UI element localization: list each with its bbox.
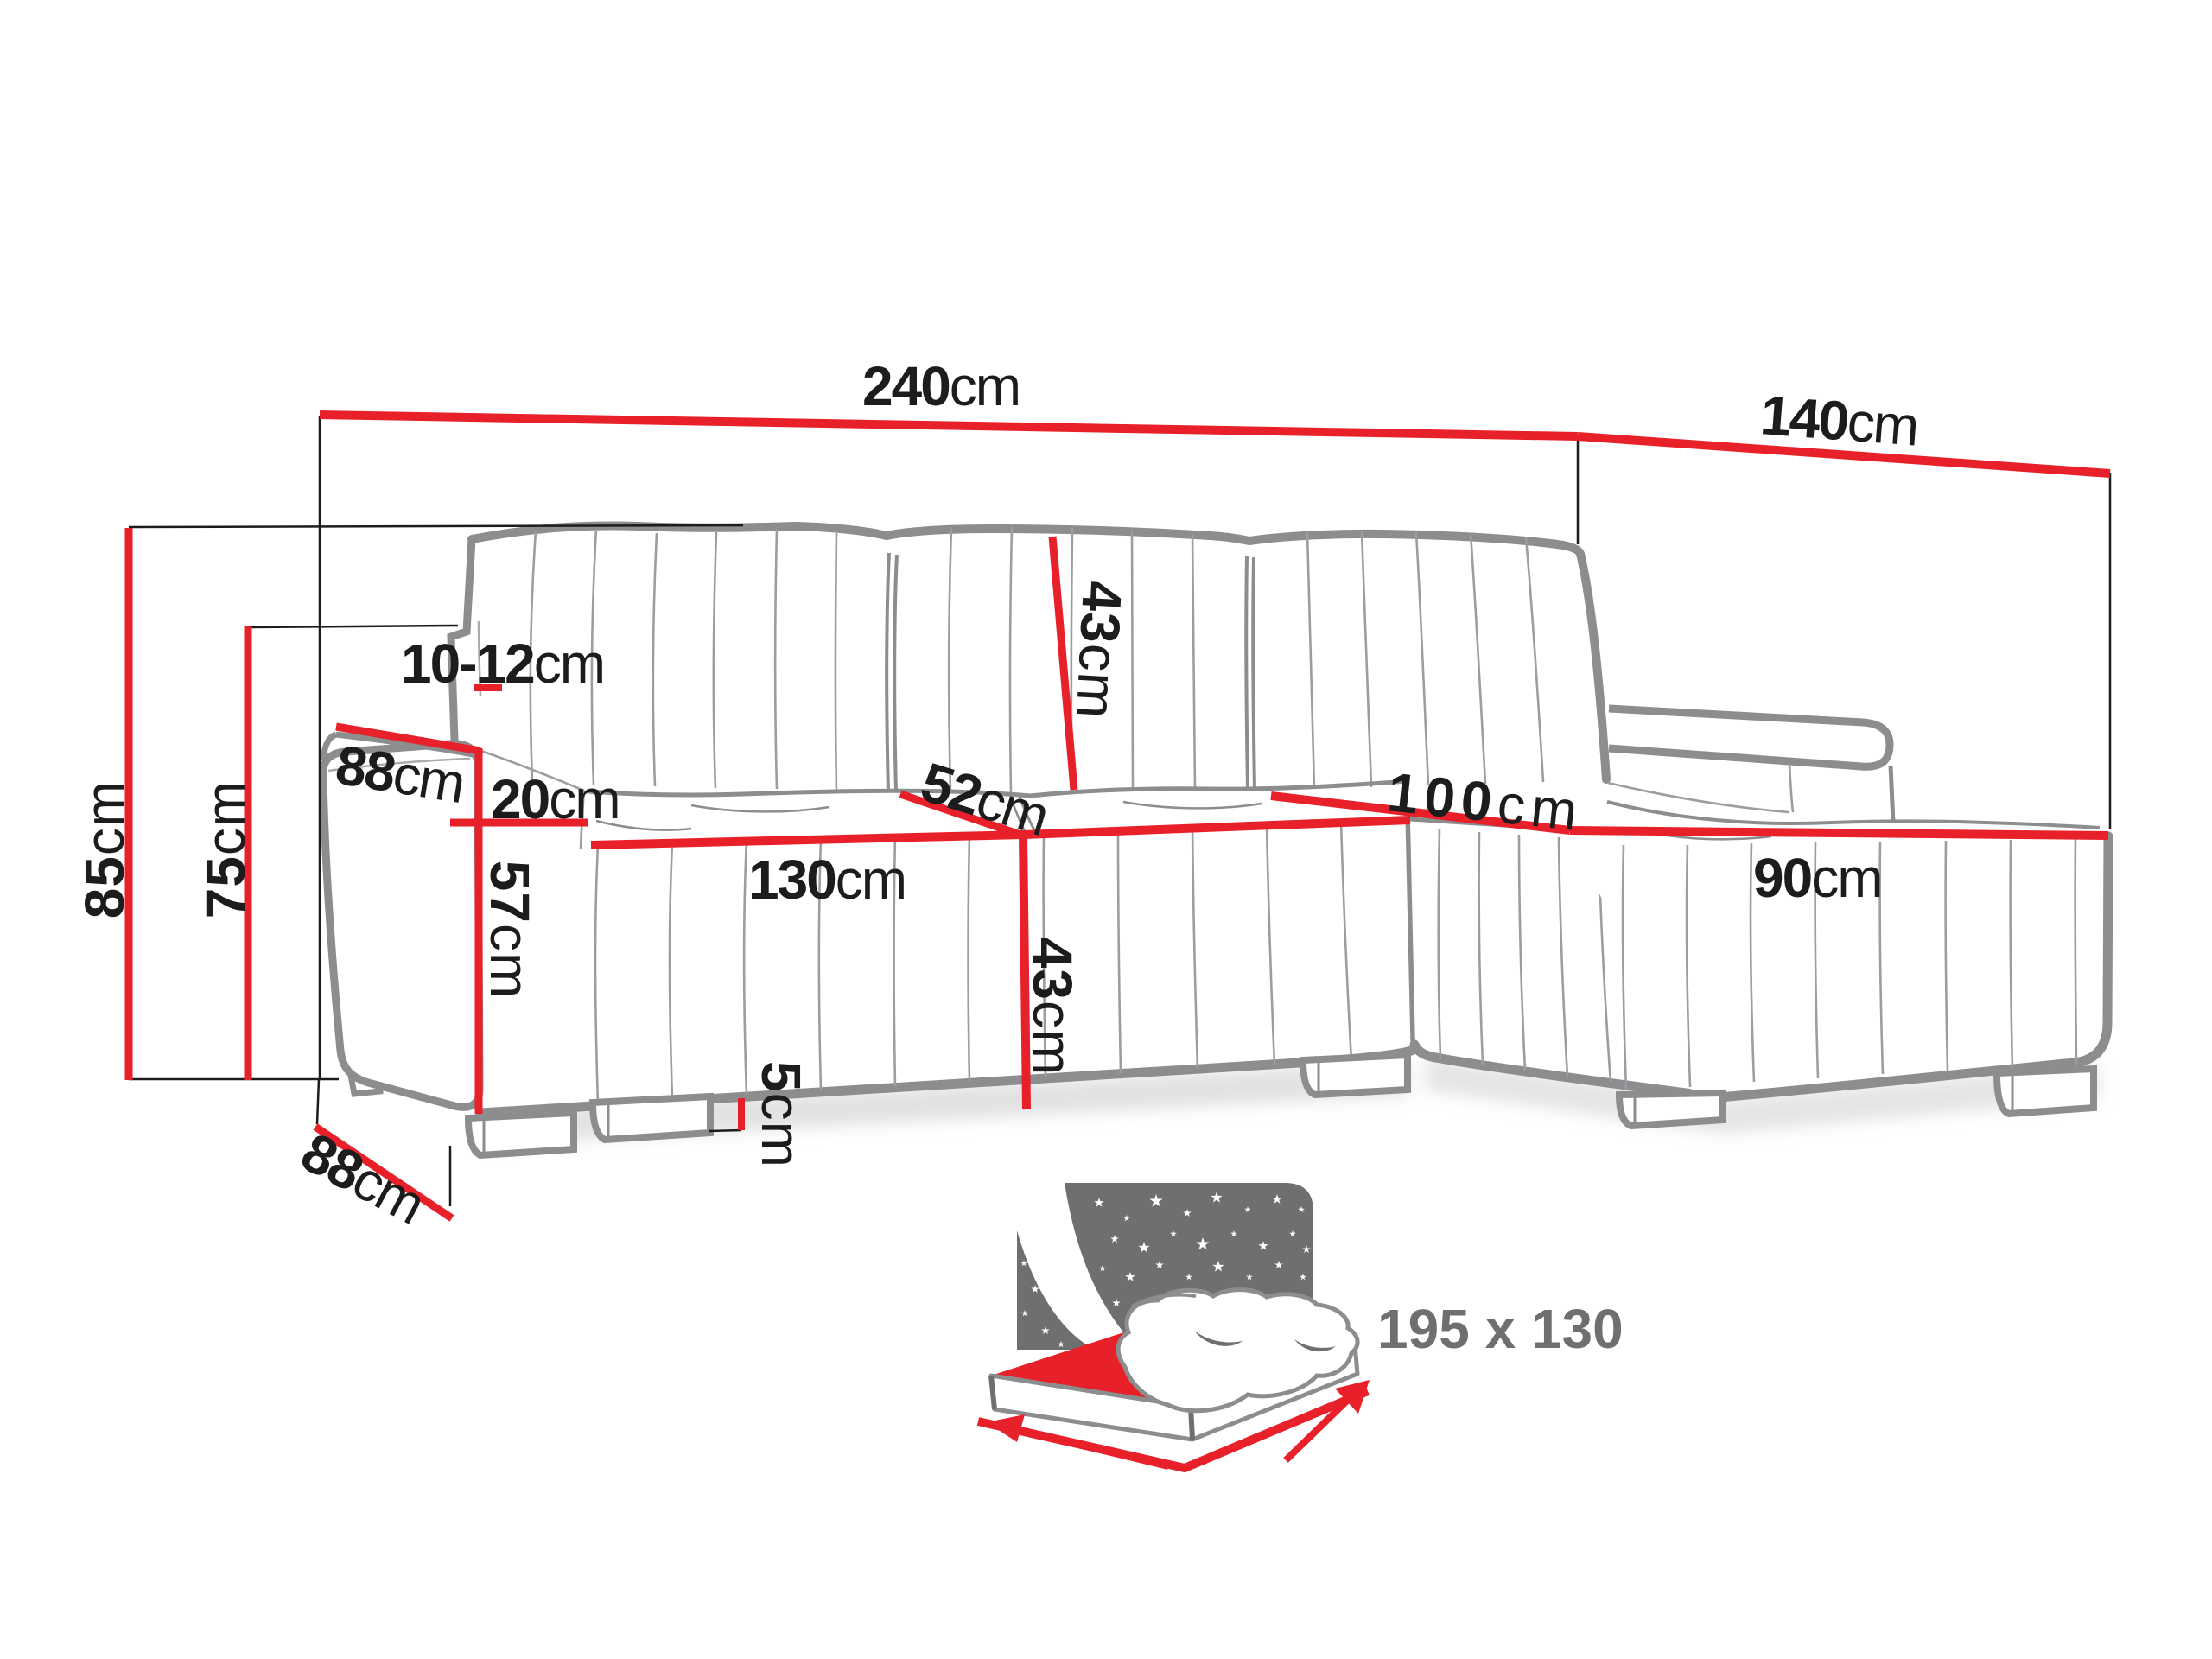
svg-text:57cm: 57cm: [479, 861, 541, 1000]
svg-text:43cm: 43cm: [1065, 579, 1134, 721]
svg-text:90cm: 90cm: [1753, 847, 1882, 909]
svg-text:130cm: 130cm: [748, 849, 906, 911]
svg-text:5cm: 5cm: [750, 1061, 812, 1168]
svg-text:85cm: 85cm: [73, 780, 136, 919]
svg-text:43cm: 43cm: [1021, 938, 1084, 1077]
svg-text:140cm: 140cm: [1758, 384, 1920, 457]
svg-text:75cm: 75cm: [194, 780, 257, 919]
svg-text:20cm: 20cm: [491, 768, 620, 830]
svg-text:10-12cm: 10-12cm: [401, 632, 604, 695]
svg-text:240cm: 240cm: [862, 355, 1020, 417]
svg-text:195 x 130: 195 x 130: [1377, 1298, 1624, 1360]
